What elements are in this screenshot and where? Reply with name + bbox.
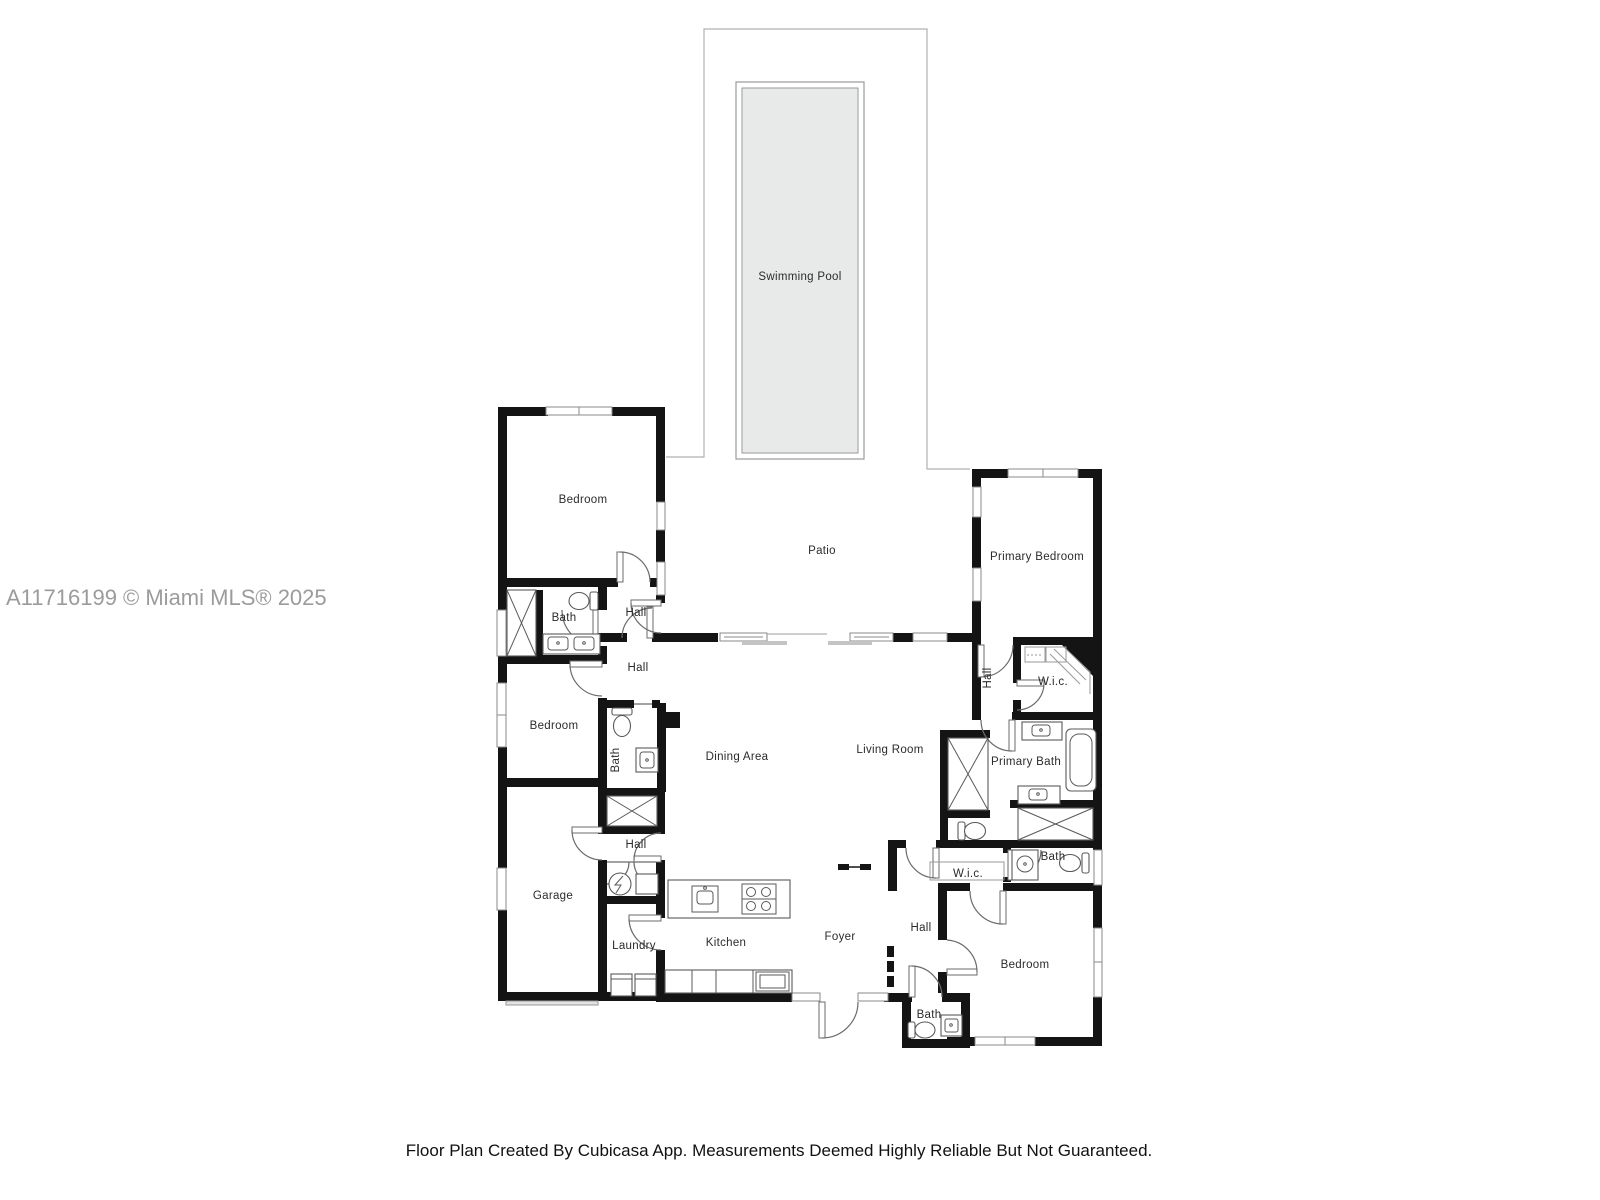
kitchen-counter bbox=[665, 970, 792, 993]
room-label-bath-rear: Bath bbox=[1041, 851, 1066, 863]
room-label-dining-area: Dining Area bbox=[706, 751, 769, 763]
room-label-primary-bath: Primary Bath bbox=[991, 756, 1061, 768]
room-label-bedroom-mid-left: Bedroom bbox=[530, 720, 579, 732]
vanity-primary-1 bbox=[1022, 722, 1062, 740]
room-label-swimming-pool: Swimming Pool bbox=[758, 271, 841, 283]
bathtub-primary bbox=[1066, 729, 1096, 791]
room-label-kitchen: Kitchen bbox=[706, 937, 746, 949]
toilet-bath-mid bbox=[612, 708, 632, 737]
room-label-hall-mid: Hall bbox=[627, 662, 648, 674]
toilet-primary bbox=[958, 822, 986, 840]
toilet-bath-bottom bbox=[908, 1022, 935, 1038]
room-label-living-room: Living Room bbox=[856, 744, 923, 756]
shower-box-primary bbox=[948, 738, 988, 810]
vanity-bath1 bbox=[543, 634, 600, 654]
vanity-bath-rear bbox=[1012, 850, 1038, 880]
room-label-hall-rear: Hall bbox=[910, 922, 931, 934]
toilet-bath1 bbox=[569, 592, 598, 610]
room-label-bedroom-top-left: Bedroom bbox=[559, 494, 608, 506]
room-label-bath-bottom: Bath bbox=[917, 1009, 942, 1021]
vanity-primary-2 bbox=[1018, 786, 1060, 804]
footer-disclaimer: Floor Plan Created By Cubicasa App. Meas… bbox=[406, 1141, 1153, 1160]
room-label-bath-mid: Bath bbox=[610, 748, 622, 773]
kitchen-island bbox=[668, 880, 790, 918]
closet-box-rear bbox=[1018, 808, 1093, 840]
room-label-wic-rear: W.i.c. bbox=[953, 868, 983, 880]
sink-bath-mid bbox=[636, 748, 658, 772]
hvac-unit bbox=[636, 874, 658, 894]
mls-watermark: A11716199 © Miami MLS® 2025 bbox=[6, 585, 327, 610]
garage-door bbox=[506, 1001, 598, 1005]
room-label-garage: Garage bbox=[533, 890, 573, 902]
room-label-hall-primary: Hall bbox=[982, 667, 994, 688]
room-label-laundry: Laundry bbox=[612, 940, 656, 952]
room-label-hall-upper: Hall bbox=[625, 607, 646, 619]
shower-box-hall bbox=[607, 796, 657, 826]
floor-plan-page: Swimming Pool Patio Bedroom Bath Hall Ha… bbox=[0, 0, 1600, 1200]
shower-box-bath1 bbox=[507, 590, 536, 656]
room-label-bedroom-bottom-right: Bedroom bbox=[1001, 959, 1050, 971]
floor-plan-canvas: Swimming Pool Patio Bedroom Bath Hall Ha… bbox=[0, 0, 1600, 1200]
sink-bath-bottom bbox=[941, 1015, 962, 1036]
room-label-hall-garage: Hall bbox=[625, 839, 646, 851]
room-label-patio: Patio bbox=[808, 545, 836, 557]
room-label-wic-primary: W.i.c. bbox=[1038, 676, 1068, 688]
room-label-foyer: Foyer bbox=[825, 931, 856, 943]
room-label-bath-top-left: Bath bbox=[552, 612, 577, 624]
room-label-primary-bedroom: Primary Bedroom bbox=[990, 551, 1084, 563]
water-heater bbox=[609, 873, 631, 895]
